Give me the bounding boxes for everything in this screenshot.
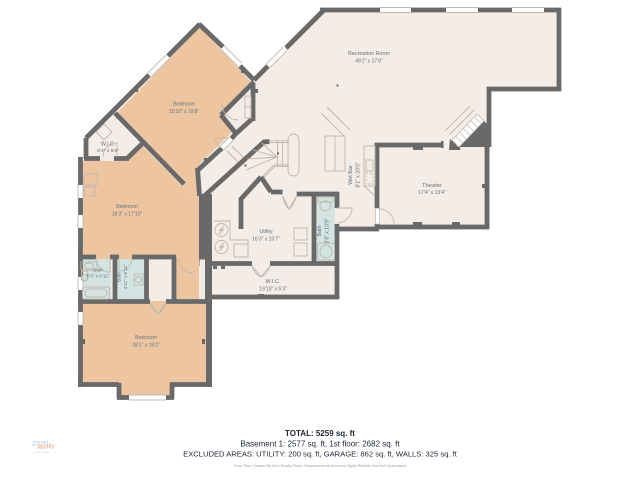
svg-text:W.I.C.: W.I.C.	[101, 142, 115, 148]
svg-text:18’1” x 19’2”: 18’1” x 19’2”	[132, 342, 160, 348]
svg-text:Utility: Utility	[259, 229, 272, 235]
svg-text:17’4” x 13’4”: 17’4” x 13’4”	[418, 190, 446, 196]
svg-text:19’10” x 5’3”: 19’10” x 5’3”	[259, 286, 287, 292]
svg-text:3’8” x 10’9”: 3’8” x 10’9”	[325, 218, 331, 244]
svg-text:Basement 1: 2577 sq. ft, 1st f: Basement 1: 2577 sq. ft, 1st floor: 2682…	[240, 439, 400, 448]
svg-text:16’3” x 17’10”: 16’3” x 17’10”	[112, 211, 143, 217]
svg-text:5’0” x 6’11”: 5’0” x 6’11”	[87, 274, 110, 279]
svg-text:Bedroom: Bedroom	[135, 335, 157, 341]
svg-text:Theater: Theater	[422, 183, 442, 189]
svg-text:W.I.C.: W.I.C.	[266, 279, 281, 285]
svg-text:photography: photography	[35, 450, 50, 454]
svg-text:TOTAL: 5259 sq. ft: TOTAL: 5259 sq. ft	[285, 429, 355, 438]
svg-text:8’4” x 6’8”: 8’4” x 6’8”	[97, 148, 119, 154]
svg-text:Bath: Bath	[317, 225, 323, 236]
svg-text:EXCLUDED AREAS: UTILITY: 200 s: EXCLUDED AREAS: UTILITY: 200 sq. ft, GAR…	[183, 450, 458, 459]
svg-text:Bath: Bath	[117, 272, 123, 282]
svg-text:49’2” x 27’8”: 49’2” x 27’8”	[355, 58, 383, 64]
svg-text:4’11” x 6’11”: 4’11” x 6’11”	[123, 264, 128, 289]
svg-text:Floor Plan Created By Zion Rea: Floor Plan Created By Zion Realty Photo.…	[234, 464, 406, 468]
svg-text:Wet Bar: Wet Bar	[348, 165, 354, 185]
svg-text:Recreation Room: Recreation Room	[348, 51, 390, 57]
svg-text:8’1” x 20’0”: 8’1” x 20’0”	[356, 162, 362, 188]
svg-text:16’3” x 15’7”: 16’3” x 15’7”	[252, 236, 280, 242]
svg-text:15’10” x 19’8”: 15’10” x 19’8”	[169, 109, 200, 115]
svg-text:Bedroom: Bedroom	[116, 204, 138, 210]
svg-text:Bedroom: Bedroom	[173, 102, 195, 108]
